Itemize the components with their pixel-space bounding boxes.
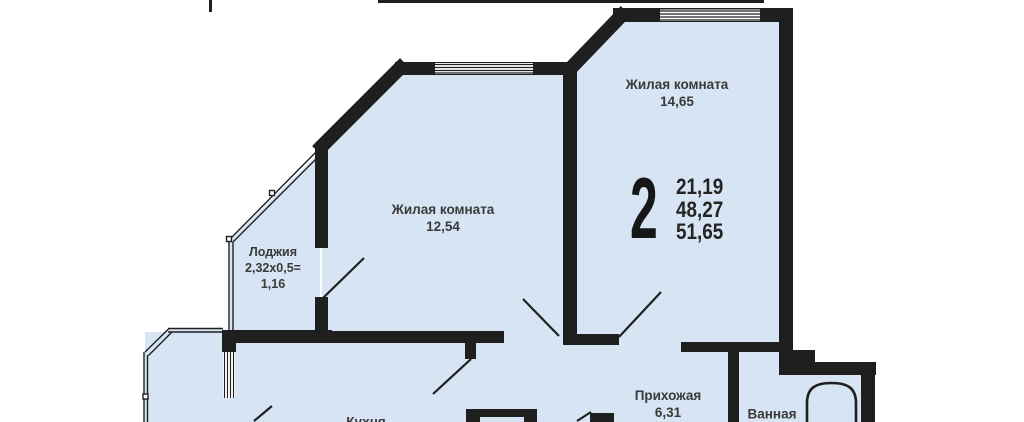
window-hatch-kitchen (223, 352, 235, 398)
area-value-usable: 48,27 (676, 199, 723, 222)
room-label-hallway: Прихожая 6,31 (635, 387, 702, 421)
window-hatch-middle (435, 63, 533, 74)
room-area: 12,54 (392, 218, 495, 235)
area-value-living: 21,19 (676, 176, 723, 199)
rooms-count: 2 (630, 175, 658, 243)
room-area: 14,65 (626, 93, 729, 110)
area-values: 21,19 48,27 51,65 (676, 176, 723, 244)
room-area: 6,31 (635, 404, 702, 421)
window-hatch-top-right (660, 10, 760, 22)
room-formula: 2,32х0,5= (245, 260, 301, 276)
room-name: Прихожая (635, 387, 702, 404)
room-area: 1,16 (245, 276, 301, 292)
room-name: Жилая комната (626, 76, 729, 93)
room-name: Лоджия (245, 244, 301, 260)
floor-plan-drawing (0, 0, 1024, 422)
floor-plan: Жилая комната 14,65 Жилая комната 12,54 … (0, 0, 1024, 422)
room-name: Ванная (748, 406, 797, 422)
room-label-kitchen: Кухня (346, 414, 385, 422)
room-label-bathroom: Ванная (748, 406, 797, 422)
room-label-living-2: Жилая комната 12,54 (392, 201, 495, 235)
room-label-living-1: Жилая комната 14,65 (626, 76, 729, 110)
room-label-loggia: Лоджия 2,32х0,5= 1,16 (245, 244, 301, 292)
room-name: Кухня (346, 414, 385, 422)
room-name: Жилая комната (392, 201, 495, 218)
area-value-total: 51,65 (676, 221, 723, 244)
